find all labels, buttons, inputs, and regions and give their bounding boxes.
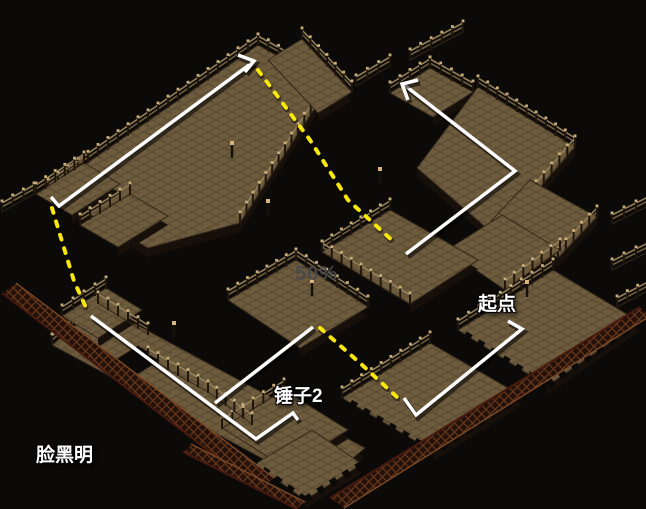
start-point-label: 起点 [478, 295, 516, 315]
watermark-label: 50% [295, 264, 338, 285]
midwalk-to-north-route [403, 84, 517, 257]
guide-center [258, 70, 396, 245]
game-map-screenshot: 50% 起点 锤子2 脸黑明 [0, 0, 646, 509]
signature-label: 脸黑明 [36, 446, 93, 466]
hammer2-label: 锤子2 [274, 387, 323, 407]
start-route [404, 321, 524, 418]
lower-hall-route [91, 316, 300, 442]
upper-hall-route [51, 62, 255, 209]
guide-southeast [320, 328, 399, 400]
guide-west [52, 208, 89, 314]
route-annotation-overlay [0, 0, 646, 509]
